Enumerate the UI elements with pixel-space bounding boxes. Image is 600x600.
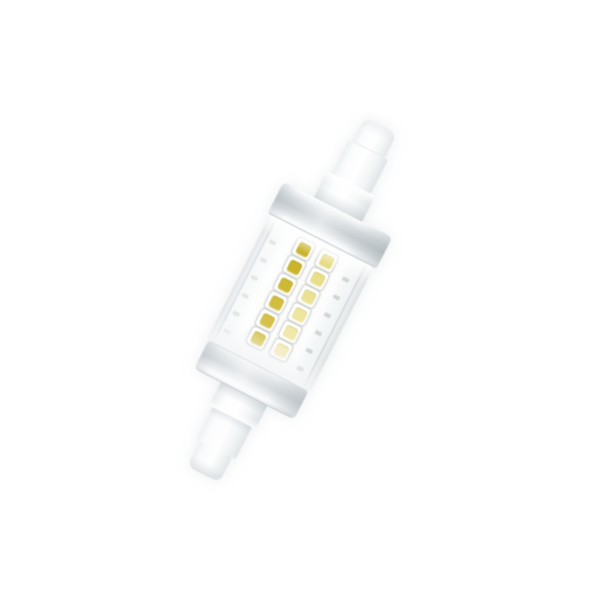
solder-pad-right	[341, 276, 349, 283]
led-lamp	[152, 97, 435, 495]
led-phosphor-die	[318, 252, 335, 269]
led-phosphor-die	[290, 306, 307, 323]
led-phosphor-die	[281, 323, 298, 340]
solder-pad-left	[241, 292, 249, 299]
led-phosphor-die	[276, 276, 293, 293]
solder-pad-right	[305, 347, 313, 354]
solder-pad-right	[314, 329, 322, 336]
led-phosphor-die	[295, 240, 312, 257]
led-phosphor-die	[300, 288, 317, 305]
product-photo-scene	[0, 0, 600, 600]
led-phosphor-die	[272, 341, 289, 358]
solder-pad-left	[259, 257, 267, 264]
solder-pad-left	[268, 239, 276, 246]
led-phosphor-die	[249, 329, 266, 346]
led-phosphor-die	[309, 270, 326, 287]
solder-pad-left	[250, 274, 258, 281]
led-phosphor-die	[285, 258, 302, 275]
solder-pad-right	[323, 312, 331, 319]
solder-pad-left	[232, 310, 240, 317]
solder-pad-right	[296, 365, 304, 372]
solder-pad-left	[223, 328, 231, 335]
led-phosphor-die	[267, 294, 284, 311]
solder-pad-right	[332, 294, 340, 301]
led-phosphor-die	[258, 312, 275, 329]
